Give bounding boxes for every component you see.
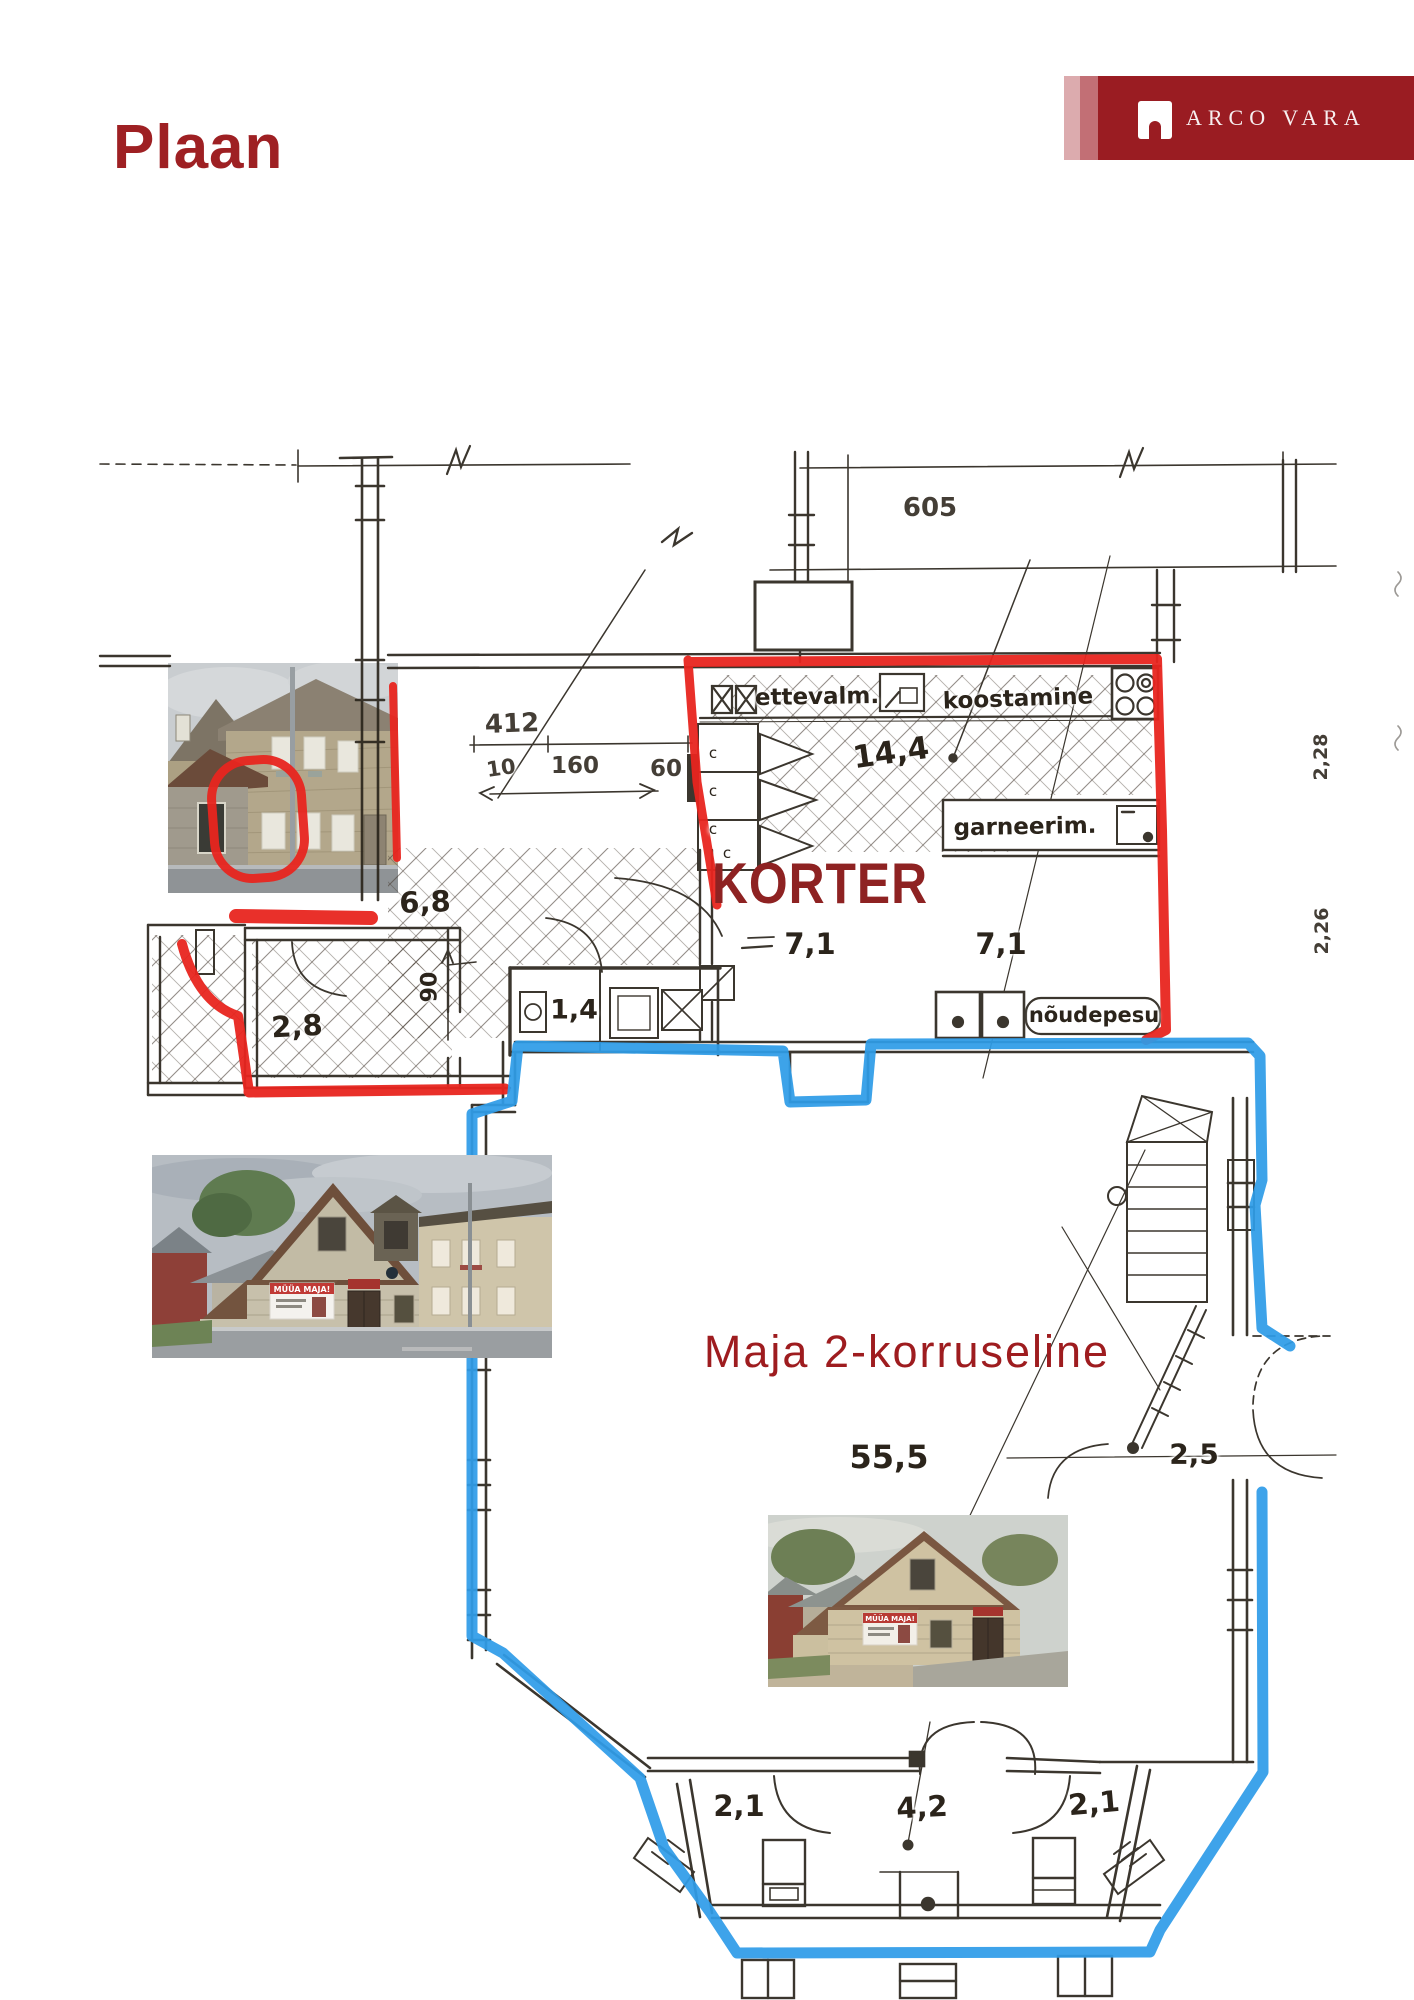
dim-60: 60 — [650, 756, 682, 782]
room-label-garneerim: garneerim. — [953, 813, 1096, 841]
closet-mark-3: c — [709, 820, 717, 838]
closet-mark-1: c — [709, 744, 717, 762]
brand-banner: ARCO VARA — [1064, 76, 1414, 160]
photo1-art — [168, 663, 398, 893]
dim-10: 10 — [485, 754, 517, 782]
area-55-5: 55,5 — [850, 1438, 929, 1476]
dim-412: 412 — [484, 708, 539, 740]
dim-160: 160 — [551, 753, 599, 779]
area-2-1-left: 2,1 — [713, 1789, 764, 1823]
area-7-1-right: 7,1 — [975, 927, 1026, 961]
area-14-4: 14,4 — [851, 730, 932, 776]
photo-house-street-3: MÜÜA MAJA! — [768, 1515, 1068, 1687]
dim-90: 90 — [418, 972, 443, 1003]
sale-banner-text: MÜÜA MAJA! — [274, 1284, 331, 1294]
korter-highlight-label: KORTER — [712, 851, 928, 917]
closet-mark-2: c — [709, 782, 717, 800]
area-6-8: 6,8 — [399, 884, 452, 920]
brand-name: ARCO VARA — [1186, 76, 1366, 160]
dim-2-26: 2,26 — [1311, 908, 1333, 955]
banner-stripe-light — [1064, 76, 1080, 160]
sale-banner-text-2: MÜÜA MAJA! — [865, 1614, 915, 1623]
maja-highlight-label: Maja 2-korruseline — [704, 1326, 1110, 1378]
dim-2-5: 2,5 — [1169, 1438, 1219, 1471]
area-2-1-right: 2,1 — [1067, 1784, 1121, 1822]
marker-overlay — [0, 0, 1414, 2000]
area-4-2: 4,2 — [895, 1789, 948, 1826]
dim-2-28: 2,28 — [1310, 734, 1332, 781]
page-title: Plaan — [113, 112, 283, 183]
photo-house-street-1 — [168, 663, 398, 893]
floor-plan-sketch — [0, 0, 1414, 2000]
arch-door-icon — [1138, 101, 1172, 139]
brochure-page: MÜÜA MAJA! — [0, 0, 1414, 2000]
area-1-4: 1,4 — [550, 995, 598, 1026]
photo2-art: MÜÜA MAJA! — [152, 1155, 552, 1358]
room-label-noudepesu: nõudepesu — [1029, 1003, 1159, 1027]
dim-605: 605 — [903, 493, 957, 523]
room-label-koostamine: koostamine — [942, 683, 1093, 714]
banner-stripe-mid — [1080, 76, 1098, 160]
room-label-ettevalm: ettevalm. — [755, 683, 880, 711]
area-2-8: 2,8 — [270, 1008, 323, 1045]
photo-house-street-2: MÜÜA MAJA! — [152, 1155, 552, 1358]
area-7-1-left: 7,1 — [784, 927, 835, 961]
photo3-art: MÜÜA MAJA! — [768, 1515, 1068, 1687]
